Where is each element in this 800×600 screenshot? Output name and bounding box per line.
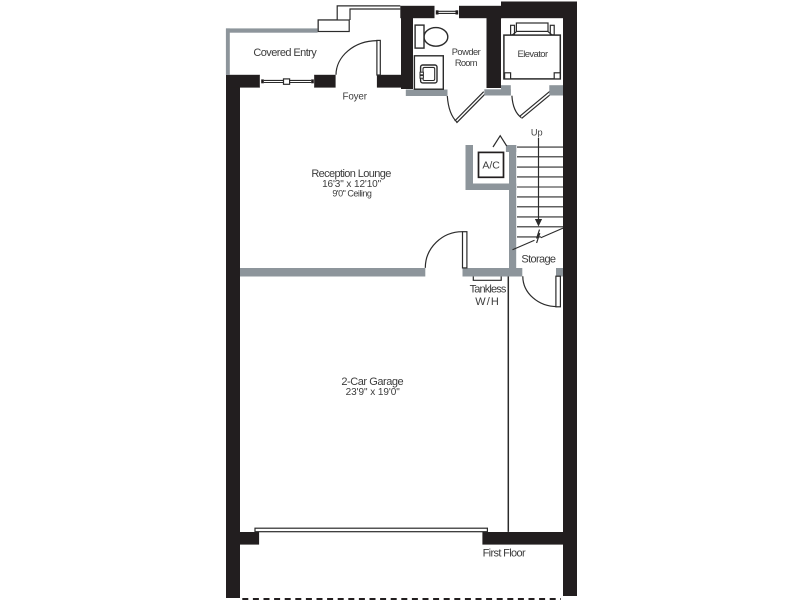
svg-text:Up: Up <box>531 128 543 138</box>
svg-text:Covered Entry: Covered Entry <box>253 47 317 59</box>
svg-text:Tankless: Tankless <box>470 284 507 296</box>
svg-text:Room: Room <box>455 58 478 68</box>
svg-text:23'9" x 19'0": 23'9" x 19'0" <box>346 387 401 398</box>
svg-text:Foyer: Foyer <box>343 92 368 103</box>
svg-text:9'0" Ceiling: 9'0" Ceiling <box>332 189 371 199</box>
svg-text:A/C: A/C <box>482 159 500 171</box>
svg-text:W/H: W/H <box>475 296 500 308</box>
svg-text:Elevator: Elevator <box>517 49 547 60</box>
svg-text:Storage: Storage <box>521 253 556 265</box>
svg-text:Powder: Powder <box>452 47 481 57</box>
svg-text:First Floor: First Floor <box>483 548 526 560</box>
